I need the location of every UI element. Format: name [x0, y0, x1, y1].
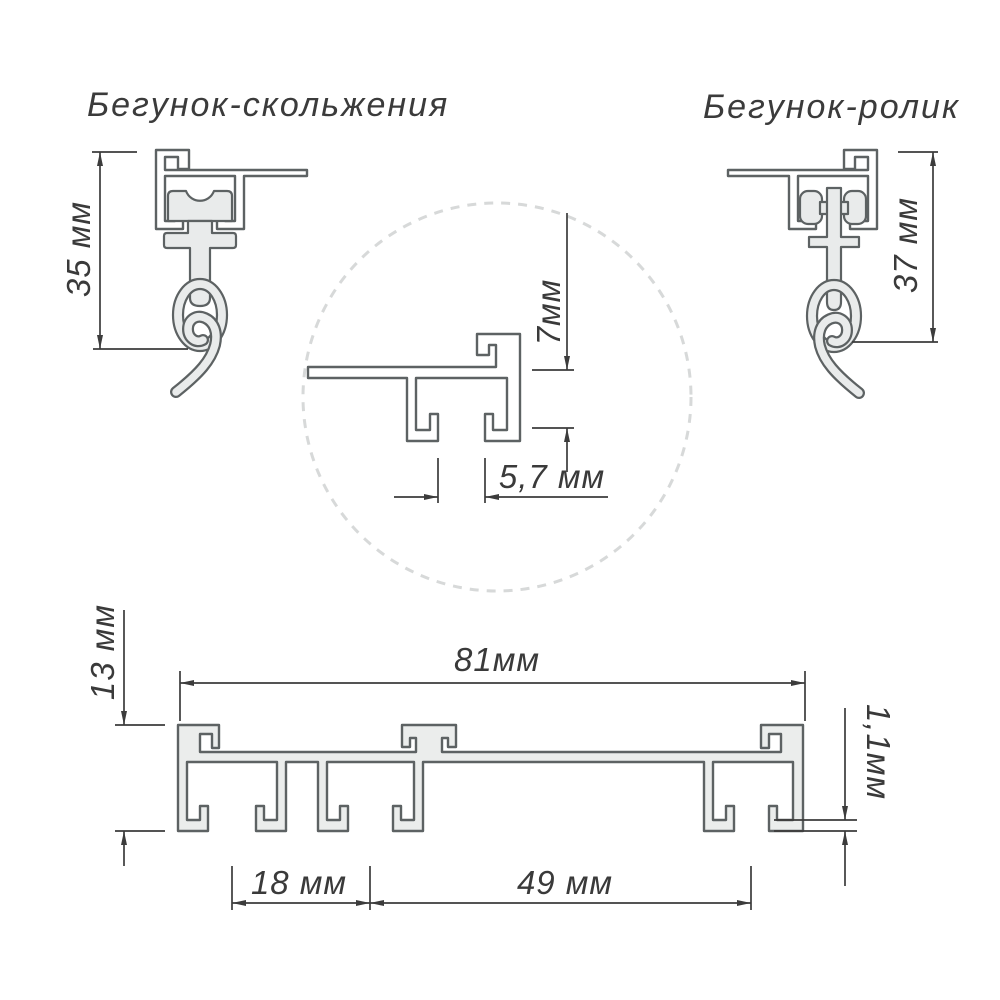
- slider-height-label: 35 мм: [60, 201, 98, 297]
- profile-outline: [178, 725, 803, 831]
- roller-runner-drawing: [728, 150, 877, 393]
- roller-wheel-left: [800, 191, 822, 224]
- track-pitch-large-label: 49 мм: [517, 864, 613, 902]
- diagram-canvas: Бегунок-скольжения Бегунок-ролик 35 мм 3…: [0, 0, 1000, 1000]
- detail-profile-outline: [308, 334, 520, 441]
- slider-runner-title: Бегунок-скольжения: [87, 86, 449, 125]
- roller-runner-title: Бегунок-ролик: [703, 88, 960, 127]
- technical-drawing: [0, 0, 1000, 1000]
- slider-glider-block: [168, 191, 232, 221]
- detail-profile-drawing: [308, 334, 520, 441]
- profile-height-dimension: [115, 610, 165, 866]
- profile-width-label: 81мм: [454, 641, 540, 679]
- wall-thickness-label: 1,1мм: [859, 704, 897, 800]
- track-pitch-small-label: 18 мм: [251, 864, 347, 902]
- slider-runner-drawing: [156, 150, 307, 392]
- detail-depth-label: 7мм: [530, 279, 568, 346]
- slider-stem: [164, 221, 236, 306]
- profile-cross-section-drawing: [178, 725, 803, 831]
- detail-zoom-circle: [303, 203, 691, 591]
- detail-slot-label: 5,7 мм: [499, 458, 605, 496]
- roller-height-label: 37 мм: [887, 197, 925, 293]
- profile-height-label: 13 мм: [84, 604, 122, 700]
